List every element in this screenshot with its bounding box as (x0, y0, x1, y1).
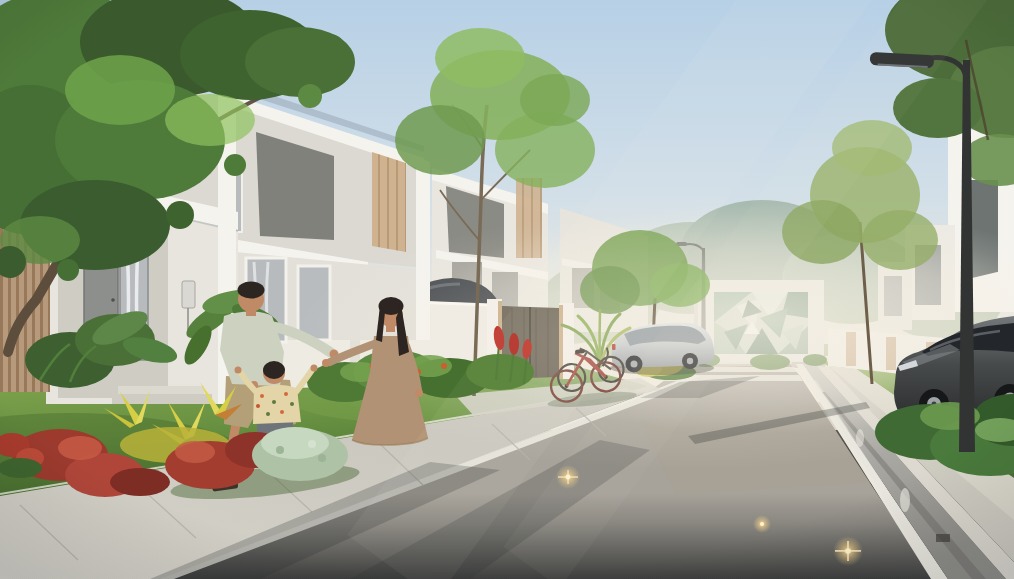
vignette (0, 0, 1014, 579)
rendering-canvas (0, 0, 1014, 579)
street-scene-rendering (0, 0, 1014, 579)
